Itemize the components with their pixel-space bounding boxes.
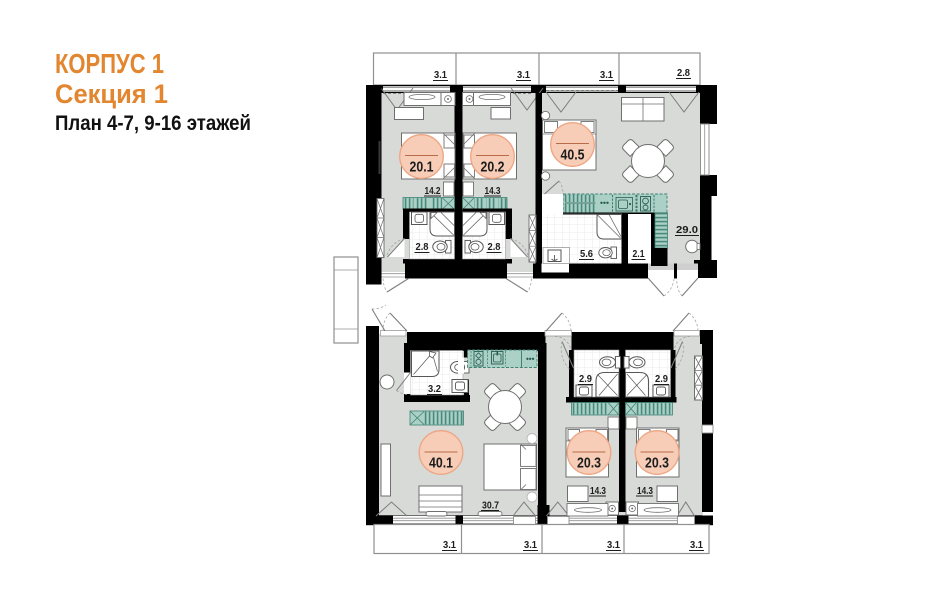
svg-text:2.8: 2.8 — [488, 242, 501, 253]
svg-text:2.9: 2.9 — [655, 374, 668, 385]
svg-text:40.5: 40.5 — [561, 148, 585, 164]
svg-text:2.9: 2.9 — [579, 374, 592, 385]
svg-text:3.1: 3.1 — [434, 70, 447, 81]
svg-text:14.3: 14.3 — [485, 186, 501, 197]
svg-text:20.1: 20.1 — [410, 160, 434, 176]
svg-text:2.8: 2.8 — [677, 68, 690, 79]
svg-text:20.2: 20.2 — [481, 160, 505, 176]
svg-text:КОРПУС 1: КОРПУС 1 — [55, 48, 164, 79]
svg-text:3.2: 3.2 — [428, 384, 441, 395]
svg-text:•••: ••• — [526, 355, 535, 364]
svg-text:2.1: 2.1 — [633, 249, 645, 260]
svg-text:14.3: 14.3 — [590, 486, 606, 497]
svg-text:План 4-7, 9-16 этажей: План 4-7, 9-16 этажей — [55, 112, 251, 135]
svg-text:29.0: 29.0 — [676, 225, 698, 236]
svg-text:3.1: 3.1 — [517, 70, 530, 81]
svg-text:Секция 1: Секция 1 — [55, 79, 168, 109]
svg-text:30.7: 30.7 — [482, 501, 499, 512]
svg-text:2.8: 2.8 — [416, 242, 429, 253]
svg-text:3.1: 3.1 — [524, 540, 537, 551]
svg-text:40.1: 40.1 — [429, 456, 453, 472]
svg-text:3.1: 3.1 — [690, 540, 703, 551]
svg-text:•••: ••• — [600, 198, 609, 208]
svg-text:14.3: 14.3 — [637, 486, 653, 497]
svg-text:3.1: 3.1 — [600, 70, 613, 81]
svg-text:3.1: 3.1 — [443, 540, 456, 551]
svg-text:20.3: 20.3 — [645, 456, 669, 472]
svg-text:20.3: 20.3 — [577, 456, 601, 472]
svg-text:5.6: 5.6 — [580, 249, 593, 260]
svg-text:14.2: 14.2 — [425, 186, 441, 197]
svg-text:3.1: 3.1 — [607, 540, 620, 551]
